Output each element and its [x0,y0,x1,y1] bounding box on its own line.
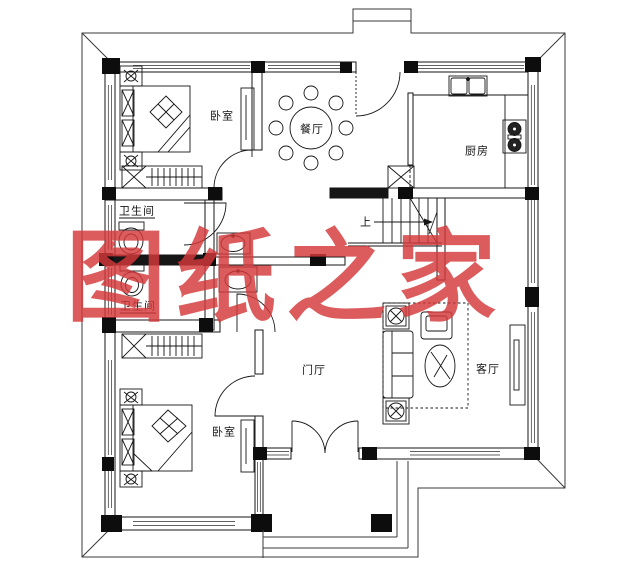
side-table-icon [383,398,409,424]
bedroom-door-arc [214,150,252,188]
room-label-kitchen: 厨房 [465,146,489,157]
room-label-bedroom-bottom: 卧室 [212,427,236,438]
stove-icon [503,120,526,153]
toilet-icon [119,222,144,254]
armchair-icon [421,312,452,339]
basin-icon [219,267,257,292]
living-room-furniture [383,303,525,424]
bedroom-door-arc [215,376,255,416]
entry-double-door [292,421,358,453]
sink-icon [449,76,487,96]
sofa-icon [383,331,413,398]
wardrobe-icon [122,334,202,358]
room-label-dining: 餐厅 [300,124,324,135]
room-label-bath-lower: 卫生间 [120,301,156,314]
floor-plan-page: 卧室 餐厅 厨房 卫生间 卫生间 上 门厅 客厅 卧室 图纸之家 [0,0,640,574]
bed-icon [120,405,192,471]
room-label-bedroom-top: 卧室 [210,111,234,122]
dresser-icon [241,420,254,472]
nightstand-icon [120,471,142,487]
stairs-up-label: 上 [360,217,372,228]
toilet-icon [120,264,144,296]
bed-icon [120,86,190,152]
bedroom-bottom-furniture [120,334,255,487]
bedroom-top-furniture [120,66,254,188]
coffee-table-icon [425,345,455,387]
rug [383,303,468,408]
room-label-foyer: 门厅 [302,365,326,376]
basin-icon [217,233,250,254]
bath-door-arc [237,294,275,332]
eave-outline [82,9,565,557]
floor-plan-drawing [0,0,640,574]
top-entry-door [356,72,400,116]
room-label-bath-upper: 卫生间 [119,206,155,219]
nightstand-icon [120,389,142,405]
side-table-icon [383,303,409,329]
wardrobe-icon [122,166,202,188]
room-label-living: 客厅 [476,364,500,375]
tv-cabinet-icon [510,325,525,405]
porch-steps [263,461,408,558]
